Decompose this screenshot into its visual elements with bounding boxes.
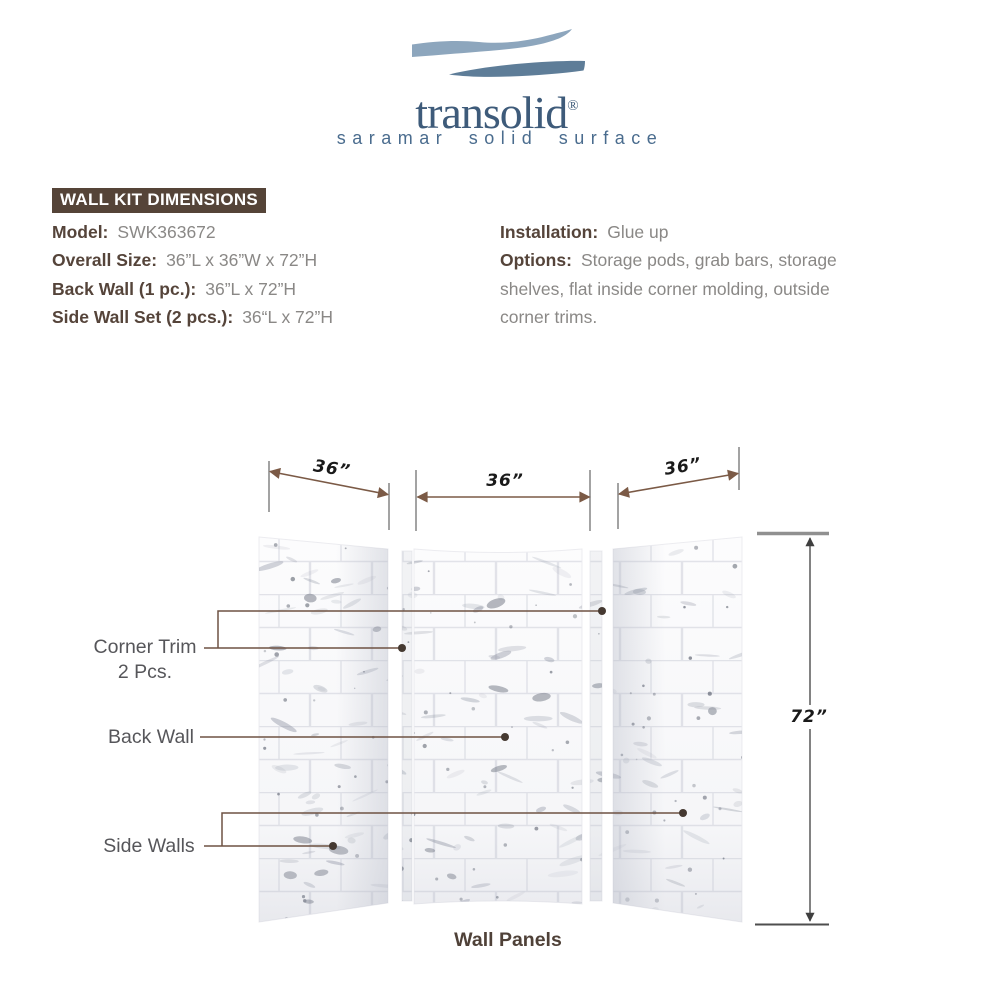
marble-vein — [549, 535, 571, 549]
dot-corner-trim-right — [598, 607, 606, 615]
spec-sheet-page: transolid® saramar solid surface WALL KI… — [0, 0, 1000, 1000]
dimension-label-height: 72” — [787, 705, 831, 729]
panel-shading — [259, 537, 742, 923]
marble-vein — [573, 915, 595, 922]
marble-vein — [605, 561, 607, 563]
marble-vein — [564, 914, 587, 917]
corner-trim-label-line1: Corner Trim — [75, 635, 215, 660]
marble-vein — [589, 540, 613, 548]
dimension-label-back-width: 36” — [477, 471, 533, 491]
marble-vein — [460, 904, 487, 916]
marble-vein — [457, 903, 479, 916]
diagram-caption: Wall Panels — [408, 929, 608, 952]
corner-trim-label: Corner Trim 2 Pcs. — [75, 635, 215, 685]
marble-vein — [558, 907, 561, 910]
dot-side-wall-right — [679, 809, 687, 817]
back-wall-label: Back Wall — [90, 725, 212, 750]
corner-trim-label-line2: 2 Pcs. — [75, 660, 215, 685]
dot-corner-trim-left — [398, 644, 406, 652]
marble-vein — [313, 914, 341, 921]
side-walls-label: Side Walls — [88, 834, 210, 859]
marble-vein — [517, 541, 520, 544]
dot-back-wall — [501, 733, 509, 741]
marble-vein — [376, 911, 391, 919]
dot-side-wall-left — [329, 842, 337, 850]
marble-vein — [391, 767, 393, 769]
